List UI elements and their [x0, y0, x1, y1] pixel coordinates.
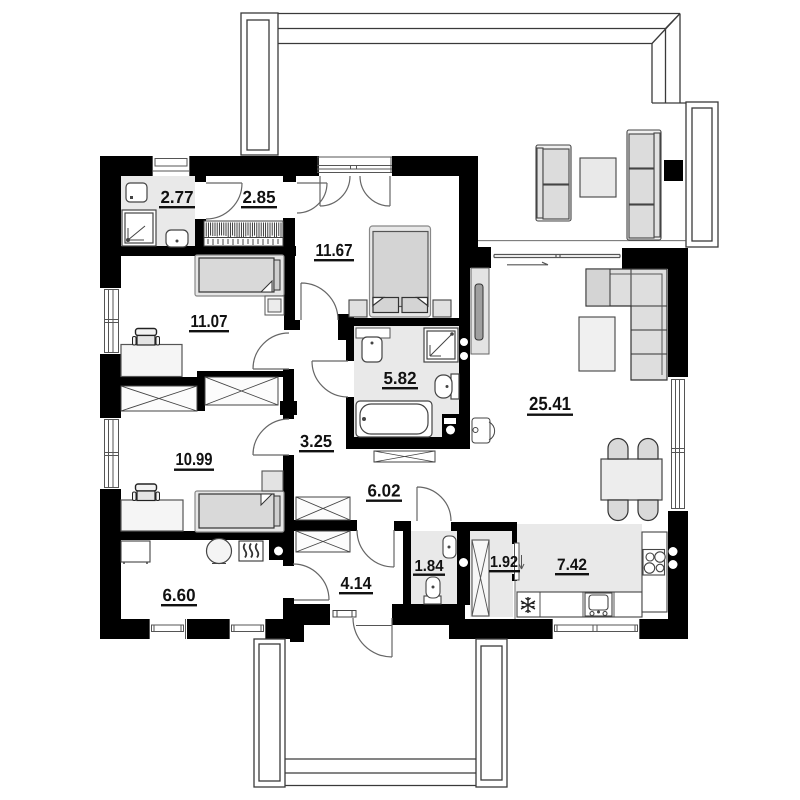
svg-text:2.77: 2.77: [161, 187, 194, 207]
svg-text:11.07: 11.07: [191, 311, 228, 331]
svg-text:1.84: 1.84: [415, 558, 444, 575]
svg-text:1.92: 1.92: [490, 554, 518, 571]
svg-text:11.67: 11.67: [316, 240, 353, 260]
svg-text:2.85: 2.85: [243, 187, 276, 207]
svg-text:25.41: 25.41: [529, 394, 571, 415]
svg-text:7.42: 7.42: [557, 556, 587, 574]
svg-text:3.25: 3.25: [300, 431, 332, 451]
svg-text:6.02: 6.02: [368, 481, 401, 501]
svg-text:4.14: 4.14: [341, 573, 372, 593]
svg-text:6.60: 6.60: [163, 585, 196, 605]
svg-text:5.82: 5.82: [384, 368, 417, 388]
svg-text:10.99: 10.99: [176, 449, 213, 469]
